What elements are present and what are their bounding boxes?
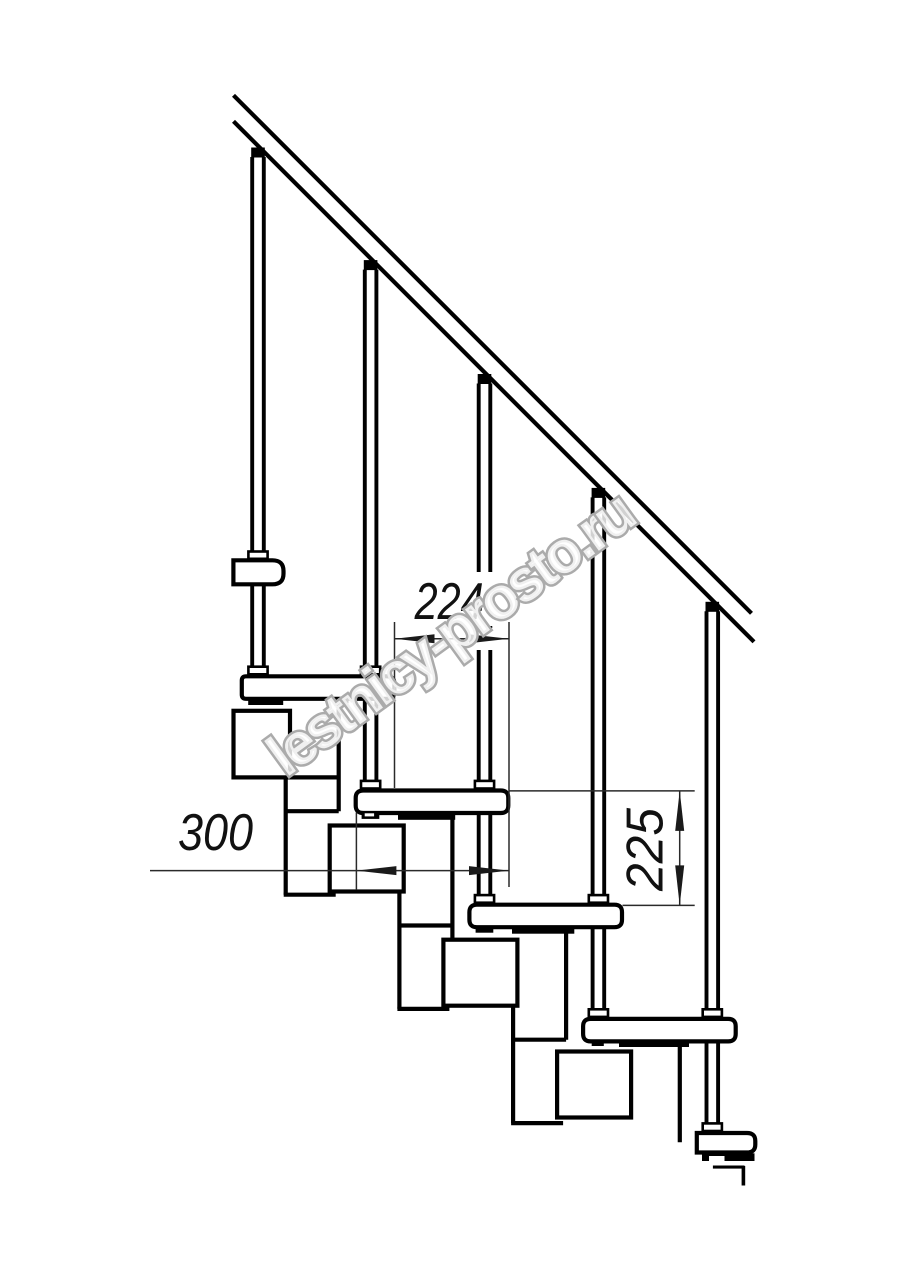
svg-text:225: 225 — [617, 807, 675, 892]
svg-text:300: 300 — [178, 804, 253, 862]
